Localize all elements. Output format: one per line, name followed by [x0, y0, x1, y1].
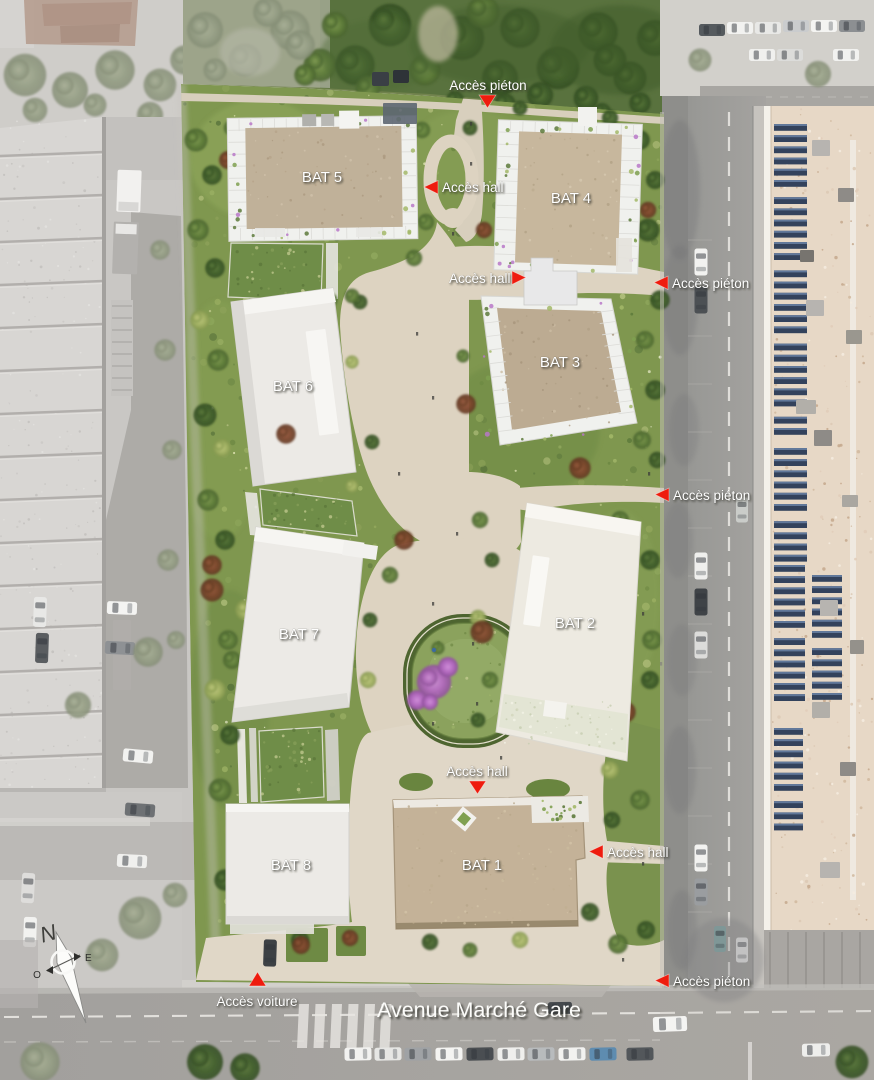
svg-text:BAT 7: BAT 7 [279, 626, 319, 643]
svg-text:BAT 6: BAT 6 [273, 378, 313, 395]
svg-text:Accès voiture: Accès voiture [216, 994, 297, 1009]
svg-text:Accès piéton: Accès piéton [673, 488, 750, 503]
svg-text:BAT 1: BAT 1 [462, 857, 502, 874]
svg-text:Accès hall: Accès hall [607, 845, 669, 860]
svg-text:Accès hall: Accès hall [446, 764, 508, 779]
svg-text:BAT 8: BAT 8 [271, 857, 311, 874]
svg-text:BAT 2: BAT 2 [555, 615, 595, 632]
svg-text:O: O [33, 970, 41, 981]
svg-text:Accès piéton: Accès piéton [449, 78, 526, 93]
svg-text:Accès piéton: Accès piéton [673, 974, 750, 989]
svg-text:BAT 4: BAT 4 [551, 190, 591, 207]
svg-text:E: E [85, 953, 92, 964]
svg-text:BAT 5: BAT 5 [302, 169, 342, 186]
svg-text:Accès hall: Accès hall [442, 180, 504, 195]
svg-text:Accès hall: Accès hall [449, 271, 511, 286]
svg-text:Avenue Marché Gare: Avenue Marché Gare [377, 998, 581, 1022]
svg-text:Accès piéton: Accès piéton [672, 276, 749, 291]
svg-text:BAT 3: BAT 3 [540, 354, 580, 371]
